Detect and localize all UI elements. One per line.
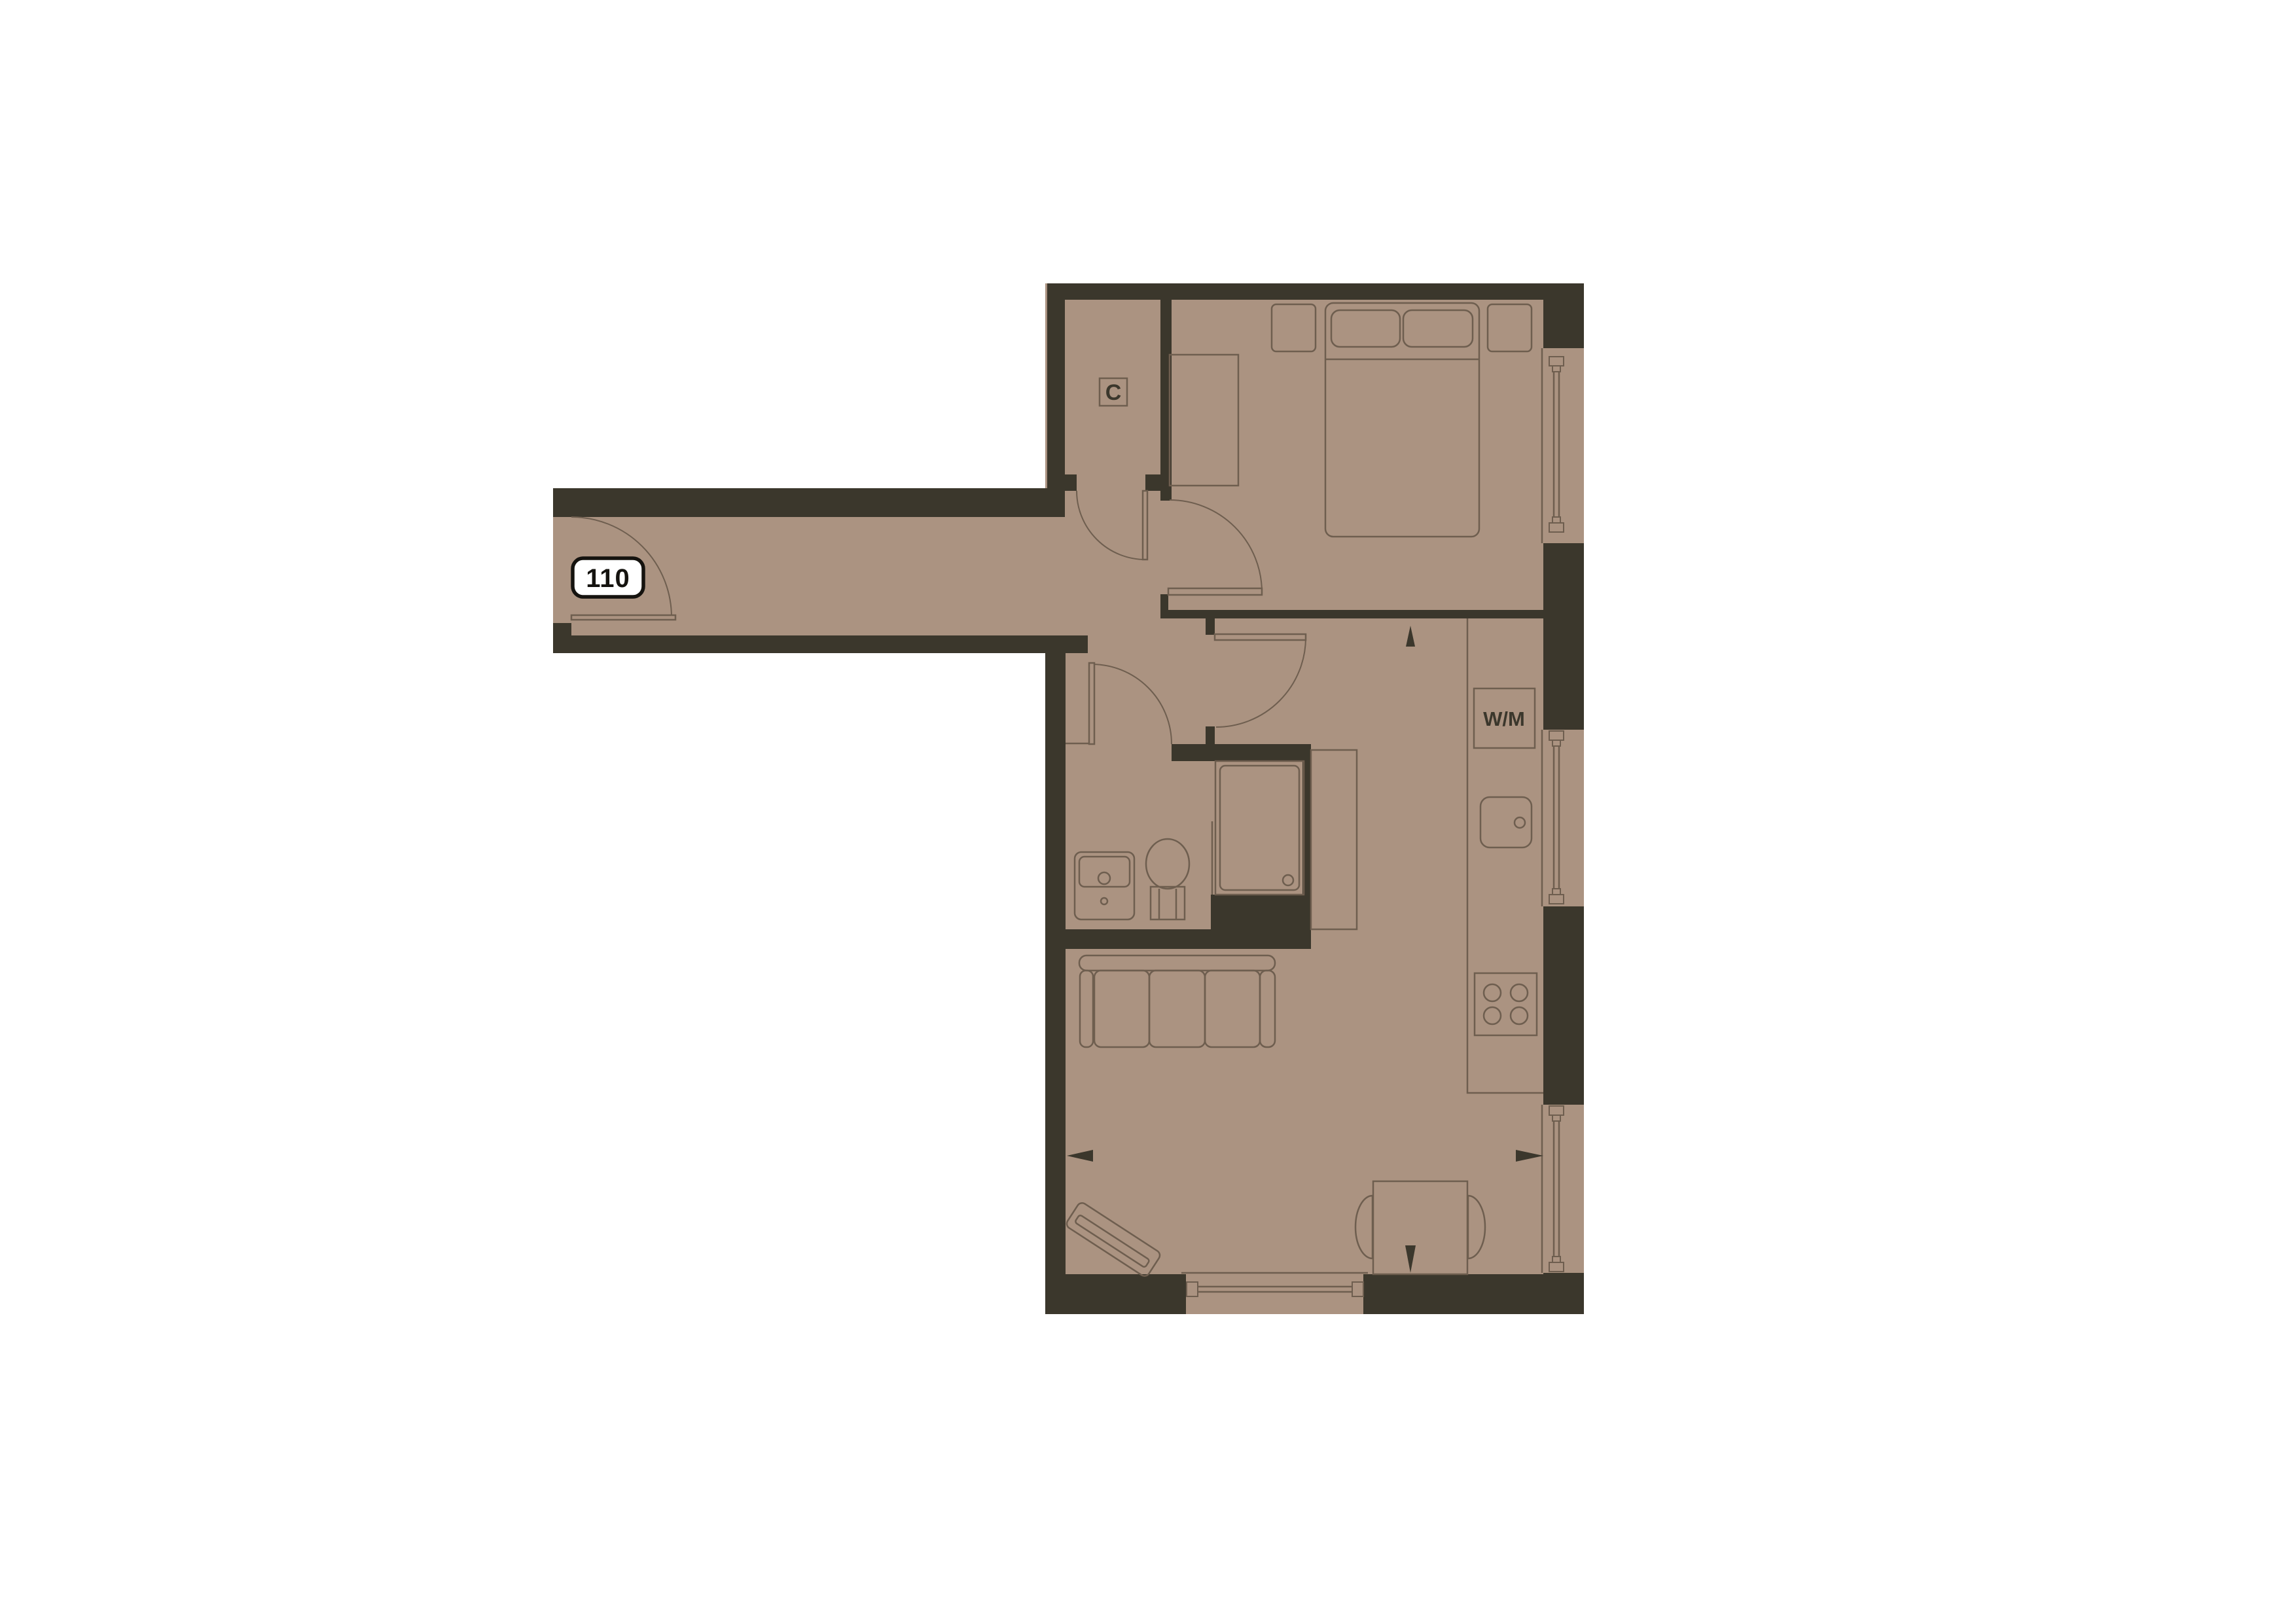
window-cap xyxy=(1552,1257,1560,1262)
window-cap xyxy=(1549,357,1564,366)
floor-main-block xyxy=(1045,283,1584,1314)
wall-bathroom-bottom xyxy=(1066,929,1211,949)
wall-right-4 xyxy=(1543,1273,1584,1314)
window-cap xyxy=(1552,889,1560,895)
wall-top xyxy=(1047,283,1584,300)
window-cap xyxy=(1187,1282,1198,1296)
bedroom-door-leaf xyxy=(1168,588,1262,595)
unit-badge-label: 110 xyxy=(586,564,630,593)
wall-right-3 xyxy=(1543,906,1584,1105)
window-cap xyxy=(1352,1282,1363,1296)
window-cap xyxy=(1549,895,1564,904)
unit-badge: 110 xyxy=(573,558,643,597)
window-cap xyxy=(1552,1115,1560,1121)
cupboard-label: C xyxy=(1105,380,1122,405)
window-cap xyxy=(1552,517,1560,523)
window-cap xyxy=(1549,1106,1564,1115)
floorplan-sheet: C W/M xyxy=(0,0,2296,1623)
wall-left-upper xyxy=(1047,283,1065,488)
wall-corridor-top xyxy=(553,488,1065,517)
bathroom-door-leaf xyxy=(1089,663,1094,744)
window-cap xyxy=(1552,366,1560,372)
wall-left-main xyxy=(1045,653,1066,1314)
wall-living-jamb-bottom xyxy=(1206,726,1215,744)
floorplan-drawing: C W/M xyxy=(0,0,2296,1623)
window-cap xyxy=(1549,523,1564,532)
cupboard-door-leaf xyxy=(1143,491,1147,560)
wall-bottom-left xyxy=(1045,1274,1186,1314)
washing-machine-label: W/M xyxy=(1483,707,1525,730)
living-door-leaf xyxy=(1215,634,1306,640)
wall-bedroom-hall xyxy=(1160,610,1543,618)
wall-bathroom-top xyxy=(1172,744,1311,761)
window-cap xyxy=(1549,1262,1564,1272)
window-cap xyxy=(1552,740,1560,746)
window-cap xyxy=(1549,731,1564,740)
wall-right-2 xyxy=(1543,543,1584,730)
wall-cupboard-jamb-left xyxy=(1065,474,1077,491)
wall-cupboard-jamb-right xyxy=(1145,474,1160,491)
entrance-door-leaf xyxy=(571,615,675,620)
wall-shower-block xyxy=(1211,895,1311,949)
wall-right-1 xyxy=(1543,283,1584,348)
wall-bedroom-door-jamb xyxy=(1160,594,1168,610)
wall-corridor-bottom xyxy=(553,635,1088,653)
wall-living-jamb-top xyxy=(1206,618,1215,635)
